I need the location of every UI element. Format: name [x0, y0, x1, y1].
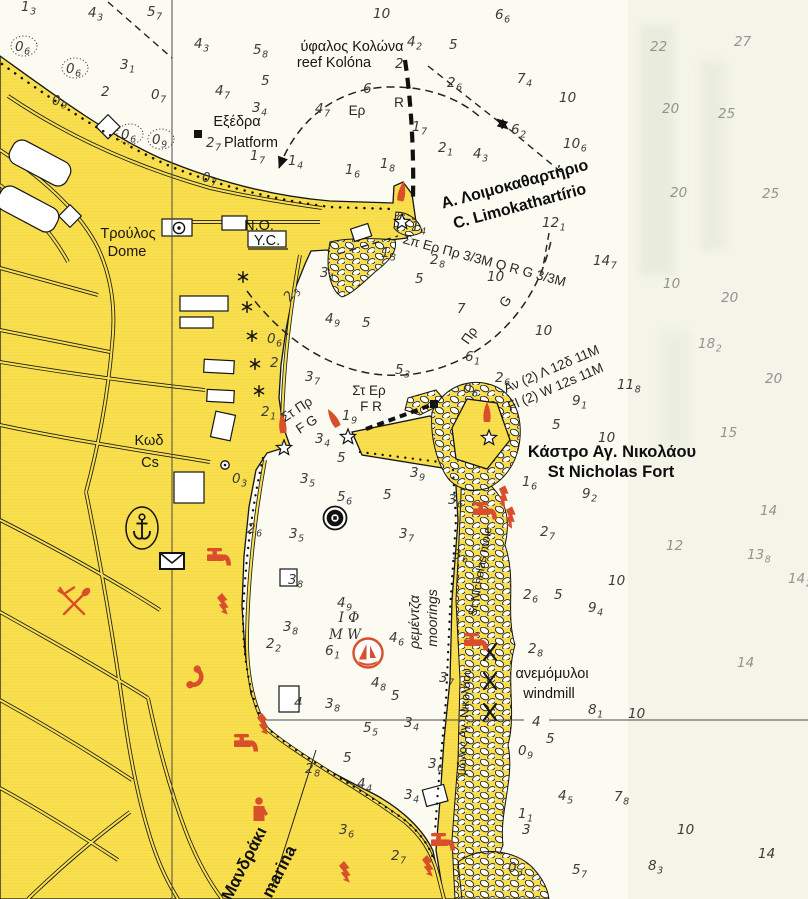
depth-sounding: 5 — [554, 587, 563, 603]
depth-sounding: 2 — [270, 355, 279, 371]
place-label-seabed-gr: Κωδ — [135, 433, 164, 449]
place-label-bottom-quality-2: M W — [328, 627, 362, 643]
place-label-no: Ν.Ο. — [244, 218, 274, 234]
place-label-bottom-quality-1: Ι Φ — [338, 610, 360, 626]
place-label-windmill-en: windmill — [522, 686, 575, 702]
depth-sounding: 10 — [373, 6, 390, 22]
square-marker-icon — [430, 400, 438, 408]
place-label-dome-gr: Τρούλος — [100, 226, 155, 242]
depth-sounding: 14 — [758, 846, 775, 862]
depth-sounding: 5 — [383, 487, 392, 503]
depth-sounding: 10 — [677, 822, 694, 838]
place-label-fort-en: St Nicholas Fort — [548, 463, 675, 481]
dome-icon — [173, 222, 184, 233]
depth-sounding: 15 — [720, 425, 737, 441]
post-envelope-icon — [160, 553, 184, 569]
depth-sounding: 5 — [415, 271, 424, 287]
depth-sounding: 22 — [650, 39, 667, 55]
depth-sounding: 4 — [294, 695, 303, 711]
nautical-chart-page: 1343570606312070906094347271714585161810… — [0, 0, 808, 899]
depth-sounding: 2 — [101, 84, 110, 100]
depth-sounding: 6 — [363, 81, 372, 97]
square-marker-icon — [194, 130, 202, 138]
depth-sounding: 25 — [762, 186, 779, 202]
depth-sounding: 20 — [662, 101, 679, 117]
depth-sounding: 5 — [261, 73, 270, 89]
depth-sounding: 5 — [546, 731, 555, 747]
depth-sounding: 5 — [362, 315, 371, 331]
nautical-chart: 1343570606312070906094347271714585161810… — [0, 0, 808, 899]
depth-sounding: 7 — [457, 301, 466, 317]
place-label-fort-gr: Κάστρο Αγ. Νικολάου — [528, 443, 696, 461]
place-label-sector-r: R — [394, 95, 404, 110]
depth-sounding: 14 — [737, 655, 754, 671]
depth-sounding: 4 — [532, 714, 541, 730]
depth-sounding: 27 — [734, 34, 752, 50]
place-label-e-entrance-gr: Στ Ερ — [352, 383, 386, 398]
depth-sounding: 10 — [608, 573, 625, 589]
depth-sounding: 10 — [535, 323, 552, 339]
depth-sounding: 5 — [343, 750, 352, 766]
depth-sounding: 5 — [337, 450, 346, 466]
place-label-yc: Υ.C. — [254, 233, 280, 249]
place-label-moorings-gr: ρεμέντζα — [406, 594, 422, 650]
place-label-sector-er: Ερ — [349, 103, 366, 118]
depth-sounding: 10 — [559, 90, 576, 106]
place-label-dome-en: Dome — [108, 244, 147, 260]
depth-sounding: 20 — [670, 185, 687, 201]
depth-sounding: 5 — [552, 417, 561, 433]
place-label-reef-name-en: reef Kolóna — [297, 55, 372, 71]
depth-sounding: 5 — [391, 688, 400, 704]
depth-sounding: 142 — [788, 571, 808, 590]
place-label-reef-name-gr: ύφαλος Κολώνα — [300, 39, 403, 55]
place-label-seabed-en: Cs — [141, 455, 159, 471]
place-label-moorings-en: moorings — [424, 589, 440, 647]
place-label-e-entrance-en: F R — [360, 399, 382, 414]
depth-sounding: 20 — [765, 371, 782, 387]
depth-sounding: 20 — [721, 290, 738, 306]
depth-sounding: 3 — [522, 822, 531, 838]
depth-sounding: 14 — [760, 503, 777, 519]
mooring-buoy-icon — [324, 507, 347, 530]
place-label-platform-gr: Εξέδρα — [213, 114, 260, 130]
depth-sounding: 10 — [628, 706, 645, 722]
depth-sounding: 12 — [666, 538, 683, 554]
depth-sounding: 2 — [395, 56, 404, 72]
depth-sounding: 25 — [718, 106, 735, 122]
place-label-windmill-gr: ανεμόμυλοι — [515, 666, 588, 682]
place-label-platform-en: Platform — [224, 135, 278, 151]
circle-dot-icon — [221, 461, 229, 469]
depth-sounding: 5 — [449, 37, 458, 53]
depth-sounding: 10 — [663, 276, 680, 292]
